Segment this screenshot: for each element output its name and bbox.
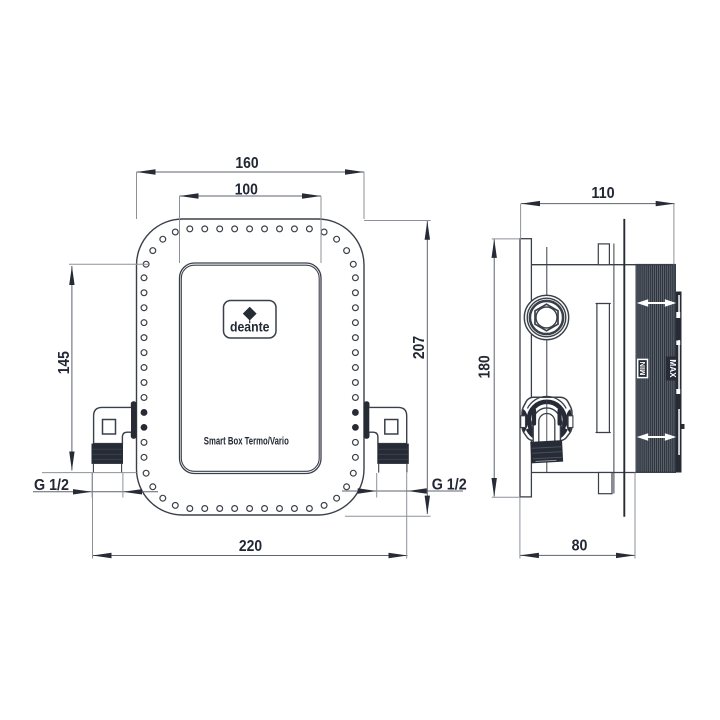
svg-text:100: 100 (235, 182, 258, 199)
svg-text:G 1/2: G 1/2 (34, 477, 69, 494)
svg-text:Smart Box Termo/Vario: Smart Box Termo/Vario (204, 436, 289, 448)
svg-text:207: 207 (411, 336, 428, 359)
svg-text:160: 160 (235, 155, 258, 172)
svg-text:80: 80 (572, 537, 588, 554)
svg-text:G 1/2: G 1/2 (432, 476, 467, 493)
svg-text:110: 110 (591, 185, 614, 202)
svg-text:MIN: MIN (638, 362, 647, 376)
svg-text:180: 180 (476, 355, 493, 378)
svg-text:220: 220 (239, 538, 262, 555)
svg-text:MAX: MAX (668, 359, 677, 378)
svg-text:145: 145 (56, 351, 73, 374)
svg-text:deante: deante (230, 318, 270, 334)
